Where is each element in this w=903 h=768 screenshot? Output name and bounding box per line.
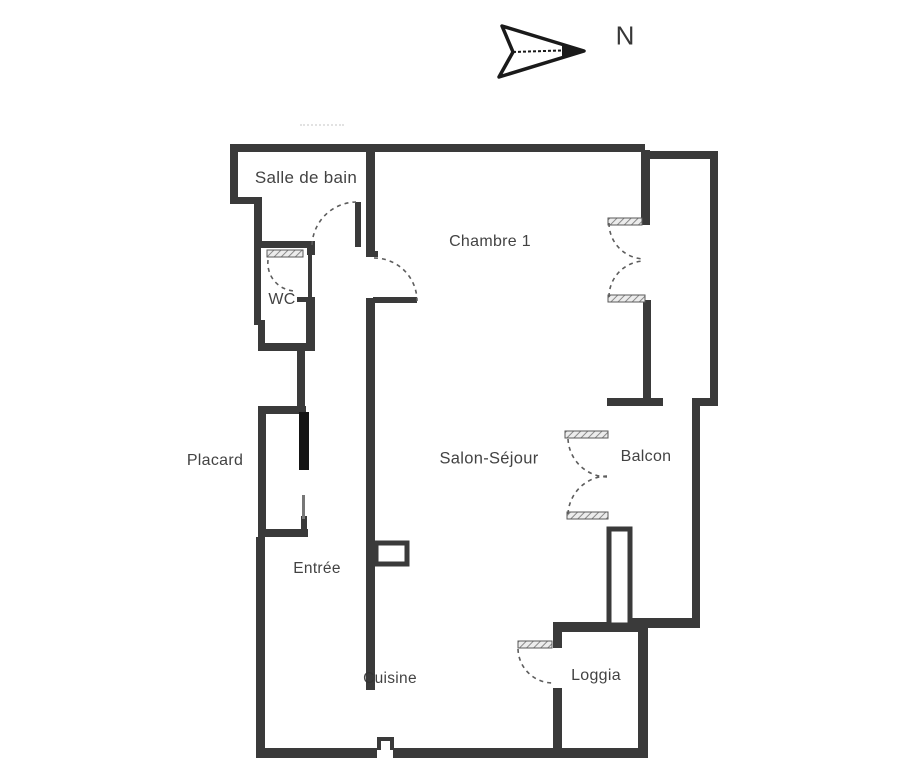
wall-hall-left: [297, 348, 305, 408]
salon-french-door-leaf-top: [565, 431, 608, 438]
wall-central-stub: [366, 251, 378, 257]
wall-central-lower: [366, 298, 375, 690]
salon-french-door-leaf-bottom: [567, 512, 608, 519]
duct-box: [376, 543, 407, 564]
chambre-french-door-leaf-bottom: [608, 295, 645, 302]
wall-top-right: [643, 151, 718, 159]
wall-bottom-left: [256, 748, 377, 758]
floor-plan-page: N Salle de bain WC Chambre 1 Placard Sal…: [0, 0, 903, 768]
room-label-loggia: Loggia: [571, 667, 621, 685]
wall-right-lower: [692, 398, 700, 628]
loggia-door-swing: [518, 649, 552, 683]
wc-door-swing: [268, 260, 295, 291]
chambre-french-door-swing-bottom: [609, 261, 644, 297]
placard-door-panel: [299, 412, 309, 470]
room-label-salon-sejour: Salon-Séjour: [440, 450, 539, 469]
north-arrow-icon: [499, 26, 586, 77]
salon-french-door-swing-bottom: [568, 476, 607, 514]
wall-wc-left-a: [254, 247, 261, 325]
chambre-door-swing: [374, 258, 417, 301]
wall-placard-left: [258, 406, 266, 537]
room-label-salle-de-bain: Salle de bain: [255, 168, 357, 188]
placard-door-panel-2: [302, 495, 305, 519]
room-label-wc: WC: [268, 291, 295, 309]
wall-sdb-left: [230, 144, 238, 204]
bathroom-door-leaf: [355, 202, 361, 247]
wall-central-upper: [366, 150, 375, 257]
wall-balcon-top: [607, 398, 663, 406]
room-label-balcon: Balcon: [621, 448, 672, 466]
salon-french-door-swing-top: [568, 439, 607, 477]
wall-sdb-doorframe: [307, 241, 315, 255]
room-label-placard: Placard: [187, 452, 243, 470]
wall-bottom-right: [393, 748, 648, 758]
door-sills: [267, 218, 645, 648]
wall-right-upper: [710, 151, 718, 403]
wall-wc-right: [306, 300, 315, 350]
chambre-french-door-leaf-top: [608, 218, 642, 225]
door-leaves: [299, 202, 417, 519]
wall-chambre-east-upper: [641, 150, 650, 225]
chambre-french-door-swing-top: [609, 223, 644, 259]
chambre-door-leaf: [373, 297, 417, 303]
wall-left-lower: [256, 537, 265, 758]
wall-sdb-bottom: [254, 241, 315, 248]
bathroom-door-swing: [312, 202, 356, 245]
north-label: N: [616, 21, 635, 52]
loggia-door-sill: [518, 641, 552, 648]
wall-notch-right: [390, 737, 394, 750]
room-label-entree: Entrée: [293, 560, 340, 578]
wall-chambre-east-lower: [643, 300, 651, 401]
wall-loggia-right: [638, 626, 648, 758]
floor-plan-drawing: [0, 0, 903, 768]
room-label-chambre-1: Chambre 1: [449, 233, 531, 251]
wall-salon-east-hollow: [609, 529, 630, 625]
wall-loggia-topleft: [553, 622, 562, 648]
wall-top-left: [230, 144, 645, 152]
wall-sdb-left2: [254, 197, 262, 247]
scan-artifact: [300, 124, 344, 130]
room-label-cuisine: Cuisine: [363, 670, 417, 688]
wall-wc-right-thin: [308, 255, 312, 300]
wc-door-sill: [267, 250, 303, 257]
wall-loggia-left: [553, 688, 562, 758]
door-swing-arcs: [268, 202, 644, 683]
